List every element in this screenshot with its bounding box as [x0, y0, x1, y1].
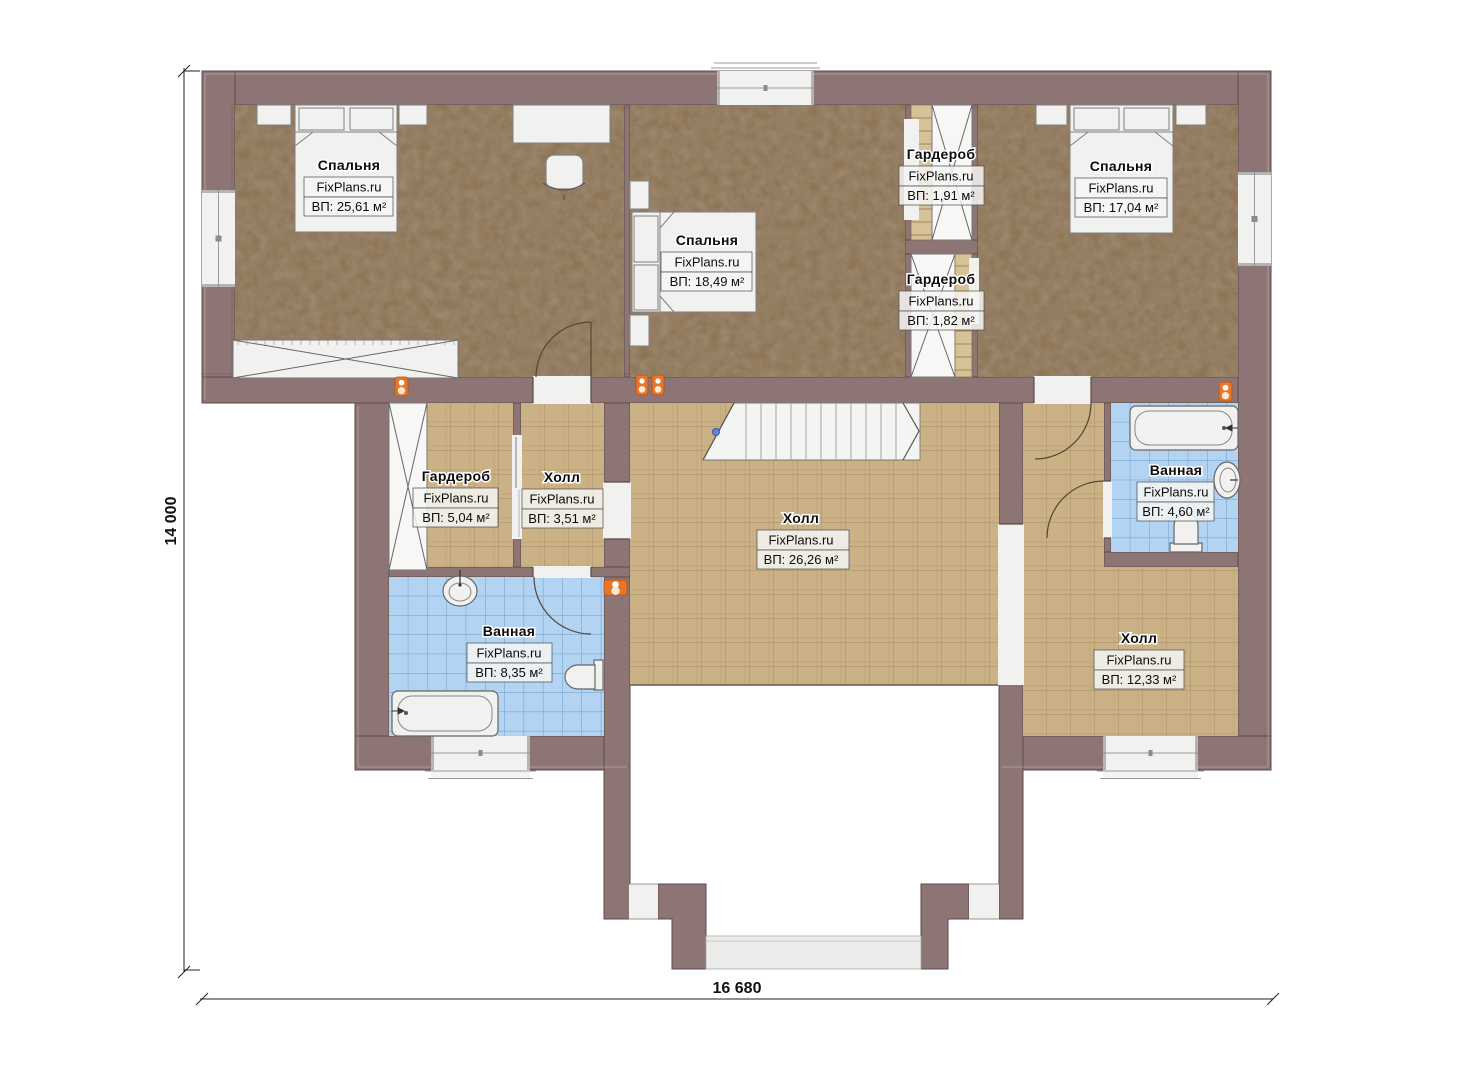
- svg-text:16 680: 16 680: [713, 980, 762, 997]
- svg-text:FixPlans.ru: FixPlans.ru: [1143, 485, 1208, 500]
- svg-text:Гардероб: Гардероб: [907, 146, 976, 162]
- svg-text:Спальня: Спальня: [318, 157, 381, 173]
- svg-text:Ванная: Ванная: [1150, 462, 1203, 478]
- svg-text:ВП: 1,91 м²: ВП: 1,91 м²: [907, 188, 975, 203]
- svg-text:FixPlans.ru: FixPlans.ru: [423, 491, 488, 506]
- svg-text:FixPlans.ru: FixPlans.ru: [768, 533, 833, 548]
- svg-text:Холл: Холл: [1121, 630, 1157, 646]
- svg-text:ВП: 8,35 м²: ВП: 8,35 м²: [475, 665, 543, 680]
- svg-text:Спальня: Спальня: [1090, 158, 1153, 174]
- svg-text:ВП: 1,82 м²: ВП: 1,82 м²: [907, 313, 975, 328]
- svg-text:Ванная: Ванная: [483, 623, 536, 639]
- svg-text:FixPlans.ru: FixPlans.ru: [1088, 181, 1153, 196]
- svg-text:ВП: 5,04 м²: ВП: 5,04 м²: [422, 510, 490, 525]
- svg-text:ВП: 4,60 м²: ВП: 4,60 м²: [1142, 504, 1210, 519]
- svg-text:ВП: 26,26 м²: ВП: 26,26 м²: [764, 552, 839, 567]
- svg-text:FixPlans.ru: FixPlans.ru: [476, 646, 541, 661]
- svg-text:FixPlans.ru: FixPlans.ru: [316, 180, 381, 195]
- svg-text:FixPlans.ru: FixPlans.ru: [908, 169, 973, 184]
- svg-text:ВП: 12,33 м²: ВП: 12,33 м²: [1102, 672, 1177, 687]
- svg-text:Холл: Холл: [544, 469, 580, 485]
- svg-text:ВП: 17,04 м²: ВП: 17,04 м²: [1084, 200, 1159, 215]
- svg-text:FixPlans.ru: FixPlans.ru: [1106, 653, 1171, 668]
- svg-text:ВП: 18,49 м²: ВП: 18,49 м²: [670, 274, 745, 289]
- svg-text:Спальня: Спальня: [676, 232, 739, 248]
- svg-text:Холл: Холл: [783, 510, 819, 526]
- svg-text:Гардероб: Гардероб: [907, 271, 976, 287]
- svg-text:ВП: 3,51 м²: ВП: 3,51 м²: [528, 511, 596, 526]
- svg-text:ВП: 25,61 м²: ВП: 25,61 м²: [312, 199, 387, 214]
- svg-text:FixPlans.ru: FixPlans.ru: [908, 294, 973, 309]
- svg-text:Гардероб: Гардероб: [422, 468, 491, 484]
- svg-text:FixPlans.ru: FixPlans.ru: [529, 492, 594, 507]
- svg-text:FixPlans.ru: FixPlans.ru: [674, 255, 739, 270]
- svg-text:14 000: 14 000: [163, 496, 180, 545]
